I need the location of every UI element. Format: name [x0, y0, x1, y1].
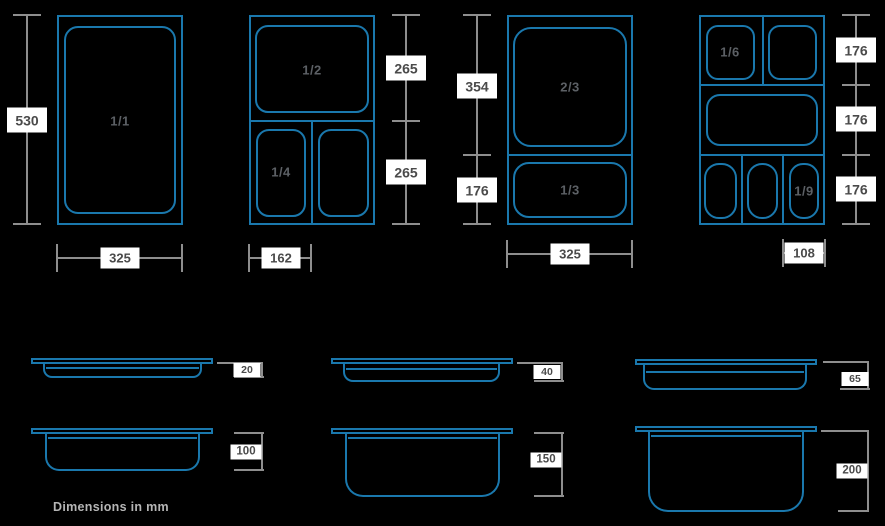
dimension-label: 176	[836, 177, 876, 202]
dimension-label: 530	[7, 108, 47, 133]
pan-size-label: 1/3	[560, 183, 580, 198]
pan-size-label: 1/1	[110, 114, 130, 129]
dimension-label: 325	[551, 244, 590, 265]
pan-body	[345, 433, 500, 497]
dimension-tick	[534, 495, 564, 497]
dimension-line	[561, 362, 563, 382]
dimension-tick	[534, 380, 564, 382]
pan-rim-step	[346, 368, 497, 370]
dimension-tick	[56, 244, 58, 272]
dimension-tick	[463, 223, 491, 225]
dimension-tick	[840, 388, 870, 390]
pan-body	[648, 431, 804, 512]
dimension-tick	[838, 510, 869, 512]
dimension-label: 325	[101, 248, 140, 269]
dimension-label: 200	[837, 464, 868, 479]
gastronorm-size-diagram: 530 1/1 325 1/2 1/4 265 265 162	[0, 0, 885, 526]
pan-inner-outline	[318, 129, 369, 217]
pan-size-label: 1/4	[271, 165, 291, 180]
dimension-tick	[181, 244, 183, 272]
dimension-tick	[842, 154, 870, 156]
dimension-label: 176	[457, 178, 497, 203]
pan-rim-step	[48, 437, 197, 439]
dimension-tick	[842, 14, 870, 16]
dimension-label: 108	[785, 243, 824, 264]
pan-size-label: 1/9	[794, 184, 814, 199]
dimension-tick	[13, 14, 41, 16]
dimension-tick	[234, 469, 264, 471]
pan-body	[343, 363, 500, 382]
dimension-tick	[392, 14, 420, 16]
dimension-tick	[821, 430, 869, 432]
dimension-tick	[506, 240, 508, 268]
dimension-label: 176	[836, 38, 876, 63]
dimension-tick	[824, 239, 826, 267]
dimension-label: 100	[231, 445, 262, 460]
dimension-tick	[248, 244, 250, 272]
dimension-tick	[842, 84, 870, 86]
dimension-label: 162	[262, 248, 301, 269]
dimension-tick	[234, 432, 264, 434]
dimension-label: 150	[531, 453, 562, 468]
pan-rim-step	[651, 435, 801, 437]
dimension-tick	[392, 223, 420, 225]
pan-body	[643, 364, 807, 390]
pan-body	[43, 363, 202, 378]
pan-divider	[782, 155, 784, 225]
dimension-tick	[631, 240, 633, 268]
pan-rim-step	[646, 371, 804, 373]
pan-size-label: 2/3	[560, 80, 580, 95]
dimension-label: 265	[386, 56, 426, 81]
dimension-tick	[823, 361, 869, 363]
pan-size-label: 1/2	[302, 63, 322, 78]
dimension-tick	[517, 362, 563, 364]
pan-divider	[741, 155, 743, 225]
dimensions-unit-note: Dimensions in mm	[53, 500, 169, 514]
dimension-tick	[534, 432, 564, 434]
pan-rim-step	[348, 437, 497, 439]
pan-divider	[311, 121, 313, 225]
pan-divider	[507, 154, 633, 156]
pan-divider	[762, 15, 764, 84]
pan-inner-outline	[768, 25, 817, 80]
pan-size-label: 1/6	[720, 45, 740, 60]
dimension-label: 354	[457, 74, 497, 99]
dimension-tick	[13, 223, 41, 225]
dimension-label: 20	[234, 363, 261, 377]
pan-rim-step	[46, 367, 199, 369]
dimension-label: 65	[842, 372, 869, 386]
pan-divider	[699, 154, 825, 156]
dimension-label: 265	[386, 160, 426, 185]
dimension-tick	[463, 154, 491, 156]
pan-inner-outline	[706, 94, 818, 146]
dimension-tick	[392, 120, 420, 122]
dimension-label: 40	[534, 365, 561, 379]
dimension-line	[261, 362, 263, 378]
dimension-tick	[842, 223, 870, 225]
dimension-label: 176	[836, 107, 876, 132]
dimension-tick	[310, 244, 312, 272]
pan-divider	[699, 84, 825, 86]
pan-inner-outline	[747, 163, 778, 219]
pan-inner-outline	[704, 163, 737, 219]
dimension-tick	[463, 14, 491, 16]
